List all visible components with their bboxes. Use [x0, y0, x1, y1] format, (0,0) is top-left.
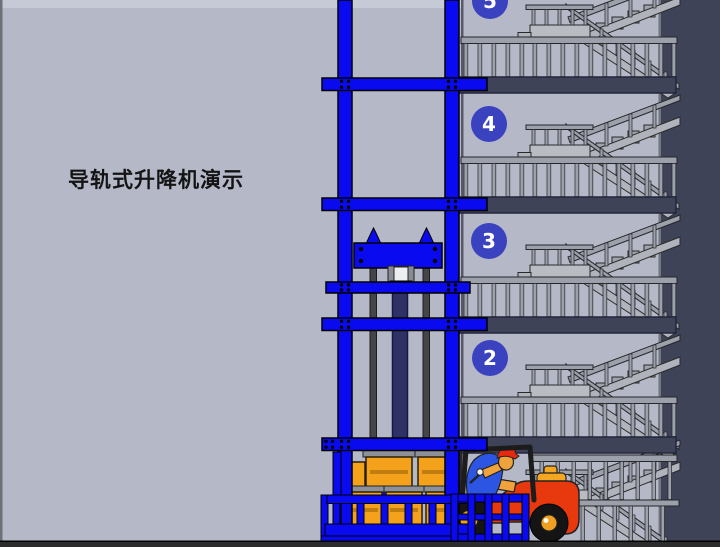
- scene-graphic: [0, 0, 720, 547]
- mast-beam: [322, 438, 487, 451]
- pulley: [394, 267, 408, 282]
- floor-badge-2: 2: [472, 340, 508, 376]
- ground: [0, 541, 720, 547]
- demo-stage: 导轨式升降机演示 5 4 3 2: [0, 0, 720, 547]
- floor-badge-3: 3: [471, 223, 507, 259]
- mast-beam: [322, 78, 487, 91]
- mast-beam: [322, 318, 487, 331]
- ground-gate-fence: [451, 494, 529, 542]
- crosshead-beam: [354, 243, 442, 268]
- rear-wheel: [530, 504, 568, 542]
- mast-beam: [322, 198, 487, 211]
- steering-knob: [477, 469, 483, 475]
- floor-badge-4: 4: [471, 106, 507, 142]
- demo-title: 导轨式升降机演示: [68, 164, 328, 194]
